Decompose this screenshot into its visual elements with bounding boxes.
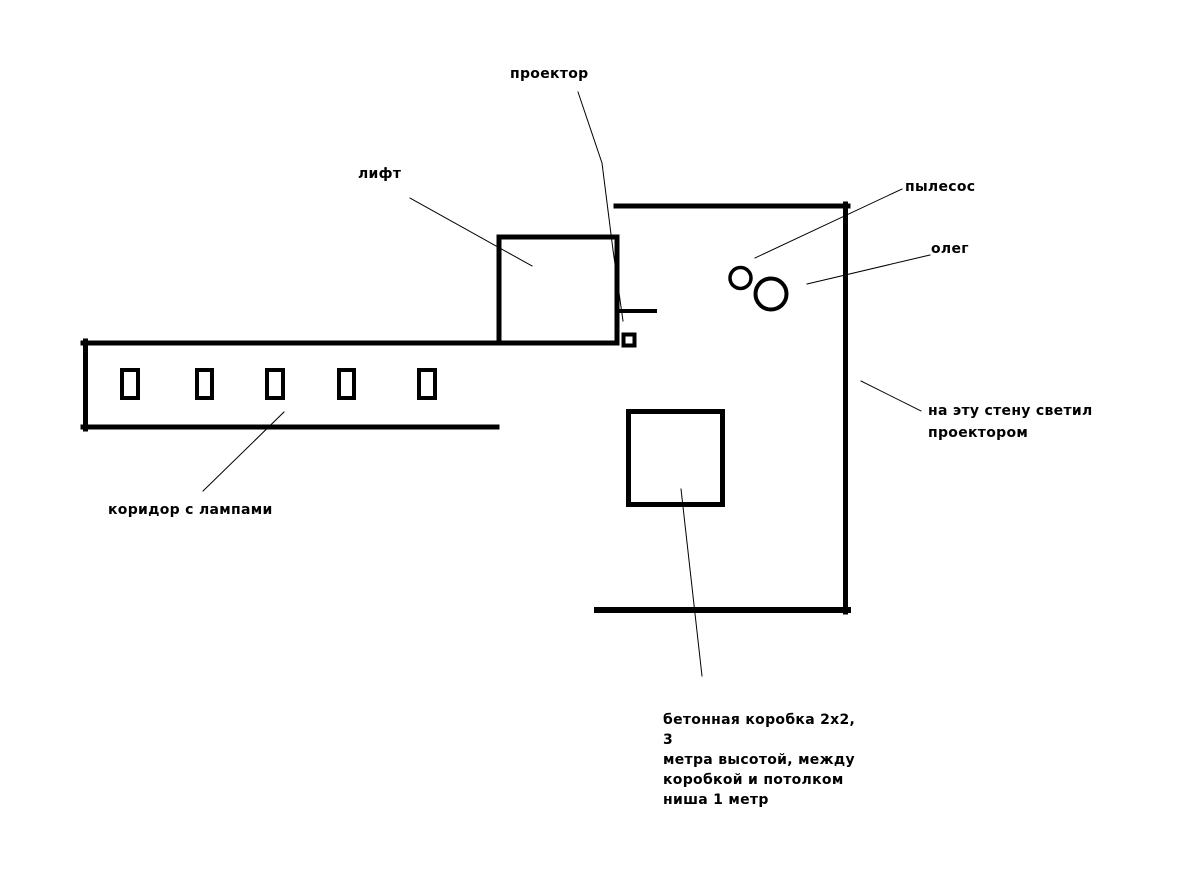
wall-note-leader-line (861, 381, 921, 411)
box-note-label: бетонная коробка 2х2, 3 метра высотой, м… (663, 710, 863, 810)
oleg-circle (756, 279, 787, 310)
vacuum-label: пылесос (905, 177, 975, 198)
oleg-label: олег (931, 239, 969, 260)
vacuum-leader-line (755, 189, 902, 258)
projector-label: проектор (510, 64, 588, 85)
oleg-leader-line (807, 255, 930, 284)
lamp-rect-1 (122, 370, 138, 398)
lift-leader-line (410, 198, 532, 266)
concrete-box-square (629, 412, 723, 505)
lamp-rect-4 (339, 370, 354, 398)
lift-label: лифт (358, 164, 401, 185)
lamp-rect-3 (267, 370, 283, 398)
lift-square (499, 237, 617, 343)
vacuum-circle (730, 268, 751, 289)
corridor-label: коридор с лампами (108, 500, 273, 521)
wall-note-label: на эту стену светил проектором (928, 400, 1098, 444)
projector-square (624, 335, 635, 346)
corridor-leader-line (203, 412, 284, 491)
box-note-leader-line (681, 489, 702, 676)
lamp-rect-5 (419, 370, 435, 398)
paint-sketch-canvas: проектор лифт пылесос олег на эту стену … (0, 0, 1194, 878)
lamp-rect-2 (197, 370, 212, 398)
